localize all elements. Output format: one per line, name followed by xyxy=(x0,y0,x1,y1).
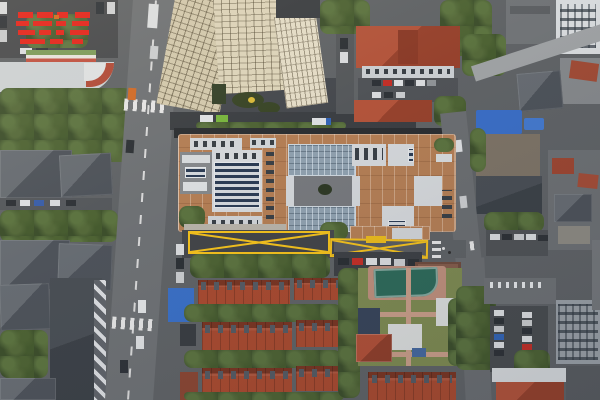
trees-row xyxy=(184,392,344,400)
car xyxy=(502,234,512,240)
car xyxy=(384,92,393,98)
courtyard-e xyxy=(558,226,590,244)
white-band-br xyxy=(492,368,566,382)
watermark-bar xyxy=(70,30,89,35)
road-br-corner xyxy=(566,366,600,400)
car xyxy=(383,80,392,86)
courtyard-walk-east xyxy=(352,176,360,206)
hvac-row xyxy=(216,153,258,159)
south-red-roof xyxy=(354,100,432,122)
plaza-yellow-feature xyxy=(248,97,255,103)
watermark-bar xyxy=(72,21,89,26)
gray-hip-ne xyxy=(516,70,563,112)
hvac-row xyxy=(252,140,274,145)
pavilion-roof xyxy=(388,324,422,350)
trees-road-east xyxy=(470,128,486,172)
watermark-bar xyxy=(56,21,66,26)
car xyxy=(50,200,60,206)
watermark-bar xyxy=(16,21,29,26)
gray-hip-e xyxy=(554,194,592,222)
car xyxy=(107,2,115,14)
car xyxy=(514,234,524,240)
boundary-cross-icon xyxy=(190,233,328,252)
car xyxy=(136,336,144,349)
car xyxy=(494,342,504,348)
hip-roof xyxy=(0,378,56,400)
car xyxy=(494,350,504,356)
aerial-photo xyxy=(0,0,600,400)
hvac-column xyxy=(442,190,452,218)
dormer-row xyxy=(205,325,289,333)
watermark-bar xyxy=(75,12,90,18)
solar-array xyxy=(214,162,260,208)
car xyxy=(120,360,128,373)
car xyxy=(126,140,135,154)
watermark-bar xyxy=(33,21,52,26)
car xyxy=(96,2,104,14)
watermark-speck xyxy=(54,15,59,19)
car xyxy=(394,259,405,266)
car xyxy=(522,312,532,318)
gray-strip-right xyxy=(592,240,600,310)
car xyxy=(372,92,381,98)
dark-hip-east xyxy=(476,176,542,214)
skylight-north xyxy=(288,144,356,176)
car xyxy=(526,234,536,240)
trees-sw xyxy=(0,330,48,378)
yellow-tag xyxy=(366,236,386,243)
car xyxy=(366,258,377,265)
truck-cab-blue xyxy=(326,118,331,125)
solar-small xyxy=(185,167,206,178)
car xyxy=(0,2,7,14)
car xyxy=(128,88,137,101)
white-bits-ne xyxy=(436,154,452,162)
car xyxy=(405,80,414,86)
car xyxy=(200,115,213,122)
car xyxy=(459,196,467,209)
pedestrian xyxy=(442,247,445,250)
car xyxy=(538,235,548,241)
terrace-units xyxy=(366,69,450,74)
white-units-west xyxy=(182,155,210,163)
hip-roof xyxy=(59,153,113,198)
hvac-column xyxy=(266,148,274,228)
crosswalk xyxy=(432,240,441,258)
roof-detail-ne xyxy=(510,6,550,14)
courtyard-tree xyxy=(318,184,332,195)
watermark-bar xyxy=(50,39,63,44)
dormer-row xyxy=(372,375,452,383)
blue-tarp xyxy=(524,118,544,130)
complex-trees-ne xyxy=(434,138,454,152)
red-roof-e1 xyxy=(552,158,574,174)
watermark-bar xyxy=(20,39,45,44)
truck xyxy=(312,118,326,125)
roof-units-br xyxy=(490,282,546,288)
watermark-bar xyxy=(37,12,53,18)
car xyxy=(340,52,348,63)
tower-roof-dark xyxy=(276,0,320,18)
watermark-bar xyxy=(39,30,51,35)
trees-mid-west xyxy=(0,210,118,242)
car xyxy=(394,80,403,86)
car xyxy=(176,258,184,269)
car xyxy=(6,200,16,206)
hvac-cluster xyxy=(355,148,383,160)
historic-roof-ridge xyxy=(398,30,418,64)
trees-column xyxy=(338,268,360,398)
watermark-bar xyxy=(56,30,64,35)
car xyxy=(66,200,76,206)
car xyxy=(396,92,405,98)
car xyxy=(427,80,436,86)
car xyxy=(0,30,7,42)
hvac-row xyxy=(194,141,238,147)
roof-white-se xyxy=(392,228,422,239)
dormer-row xyxy=(205,371,289,379)
car xyxy=(216,115,228,122)
car xyxy=(494,310,504,316)
car xyxy=(494,334,504,340)
watermark-bar xyxy=(18,12,33,18)
planter-rect xyxy=(212,84,226,104)
car xyxy=(340,38,348,49)
building-windows xyxy=(558,304,598,360)
courtyard-walk-west xyxy=(286,176,294,206)
solar-specks xyxy=(408,148,414,162)
car xyxy=(176,272,184,283)
car xyxy=(522,328,532,334)
pedestrian xyxy=(448,251,451,254)
navy-building xyxy=(358,308,380,334)
dark-building-sw xyxy=(180,324,196,346)
hedge-south xyxy=(190,254,330,278)
car xyxy=(34,200,44,206)
car xyxy=(20,200,30,206)
trees-row-east xyxy=(484,212,544,232)
red-roof-ne xyxy=(569,60,599,82)
car xyxy=(372,80,381,86)
watermark-bar xyxy=(72,39,83,44)
car xyxy=(176,244,184,255)
marked-area-west xyxy=(188,231,330,254)
car xyxy=(150,46,159,60)
red-hip-house xyxy=(356,334,392,362)
car xyxy=(138,300,146,313)
hip-roof xyxy=(0,283,51,331)
car xyxy=(352,258,363,265)
roof-white-east xyxy=(414,176,442,206)
sawtooth-balconies xyxy=(94,280,106,400)
car xyxy=(0,16,7,28)
car xyxy=(522,320,532,326)
dormer-row xyxy=(201,282,287,290)
red-roof-e2 xyxy=(577,173,598,189)
car xyxy=(416,80,425,86)
car xyxy=(380,258,391,265)
watermark-bar xyxy=(18,30,35,35)
car xyxy=(490,234,500,240)
car xyxy=(522,336,532,342)
car xyxy=(494,326,504,332)
white-box-west xyxy=(183,182,207,191)
street-stub xyxy=(424,240,466,258)
red-roof-br xyxy=(496,382,564,400)
car xyxy=(338,258,349,265)
bus xyxy=(147,4,159,29)
car xyxy=(494,318,504,324)
blue-tent xyxy=(412,348,426,357)
